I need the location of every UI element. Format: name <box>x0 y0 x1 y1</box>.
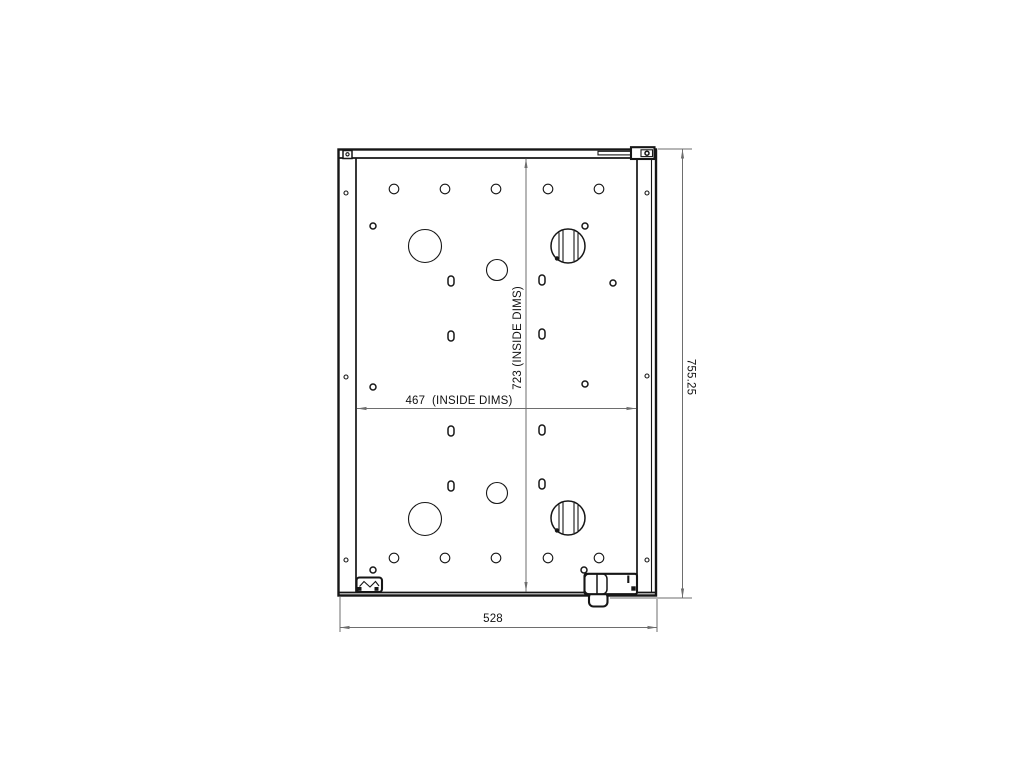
flange-hole <box>344 191 348 195</box>
bottom-left-bracket-foot-left <box>358 587 362 591</box>
flange-hole <box>645 558 649 562</box>
pilot-hole <box>370 567 376 573</box>
top-right-bracket <box>631 147 655 159</box>
corner-hardware <box>343 147 655 606</box>
panel-outline <box>339 150 657 596</box>
mount-hole <box>389 553 399 563</box>
slot-hole <box>539 329 545 339</box>
slot-hole <box>448 276 454 286</box>
dim-inside-width-label: 467 (INSIDE DIMS) <box>405 395 512 407</box>
mount-hole <box>440 553 450 563</box>
flange-hole <box>645 191 649 195</box>
dim-inside-height-label: 723 (INSIDE DIMS) <box>512 286 524 390</box>
flange-hole <box>344 375 348 379</box>
mount-hole <box>594 553 604 563</box>
mount-hole <box>389 184 399 194</box>
slot-hole <box>448 426 454 436</box>
grommet-tab <box>555 528 559 532</box>
pilot-hole <box>610 280 616 286</box>
top-left-tab <box>343 151 352 159</box>
mount-hole <box>491 553 501 563</box>
arrow-right-icon <box>648 626 658 629</box>
cad-drawing: 723 (INSIDE DIMS) 467 (INSIDE DIMS) 528 … <box>0 0 1024 768</box>
dim-outside-width: 528 <box>340 597 657 632</box>
dim-outside-height: 755.25 <box>610 149 697 598</box>
arrow-up-icon <box>681 149 684 159</box>
large-hole <box>409 230 442 263</box>
grommet-tab <box>555 256 559 260</box>
mount-hole <box>440 184 450 194</box>
slot-hole <box>539 425 545 435</box>
dim-outside-width-label: 528 <box>483 613 503 625</box>
arrow-down-icon <box>524 582 527 592</box>
mount-hole <box>543 553 553 563</box>
bottom-left-bracket-foot-right <box>375 587 379 591</box>
hole-pattern <box>344 184 649 573</box>
flange-hole <box>344 558 348 562</box>
arrow-up-icon <box>524 159 527 169</box>
medium-hole <box>487 260 508 281</box>
mount-hole <box>491 184 501 194</box>
arrow-right-icon <box>627 407 637 410</box>
medium-hole <box>487 483 508 504</box>
pilot-hole <box>370 384 376 390</box>
arrow-left-icon <box>357 407 367 410</box>
slot-hole <box>539 479 545 489</box>
slot-hole <box>448 331 454 341</box>
dim-outside-height-label: 755.25 <box>685 359 697 395</box>
flange-hole <box>645 374 649 378</box>
mount-hole <box>543 184 553 194</box>
slot-hole <box>448 481 454 491</box>
large-hole <box>409 503 442 536</box>
bottom-right-bracket-foot <box>631 586 635 590</box>
pilot-hole <box>370 223 376 229</box>
arrow-left-icon <box>340 626 350 629</box>
pilot-hole <box>582 381 588 387</box>
slot-hole <box>539 275 545 285</box>
panel-frame <box>339 150 657 596</box>
arrow-down-icon <box>681 589 684 599</box>
mount-hole <box>594 184 604 194</box>
pilot-hole <box>581 567 587 573</box>
drawing-canvas: 723 (INSIDE DIMS) 467 (INSIDE DIMS) 528 … <box>0 0 1024 768</box>
dim-inside-height: 723 (INSIDE DIMS) <box>512 159 528 592</box>
pilot-hole <box>582 223 588 229</box>
dim-inside-width: 467 (INSIDE DIMS) <box>357 395 636 410</box>
